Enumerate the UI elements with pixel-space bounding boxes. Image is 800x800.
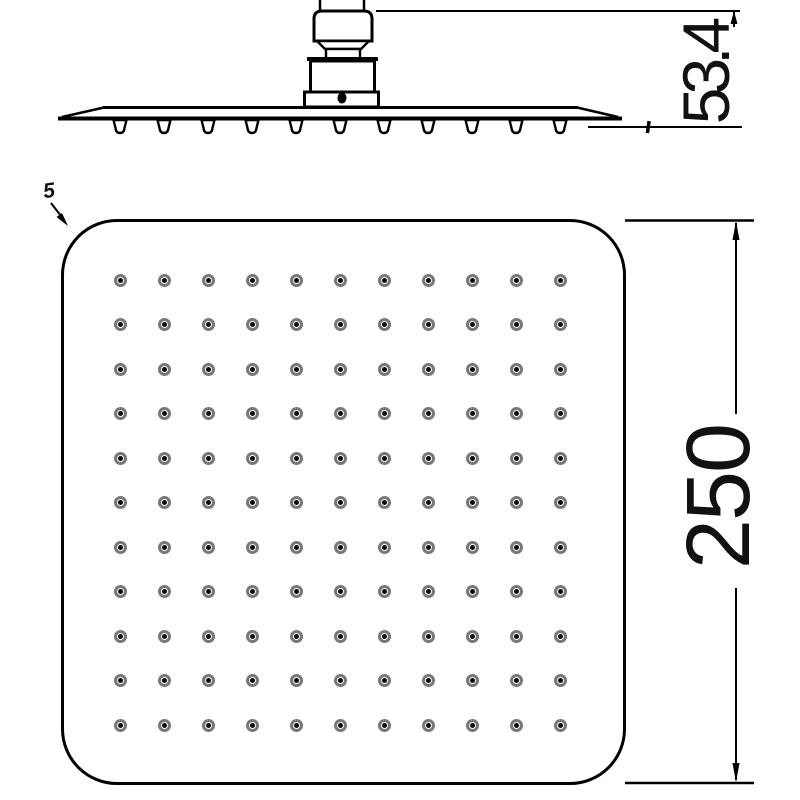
plate-left-bevel xyxy=(62,108,104,118)
connector-body xyxy=(311,61,375,92)
corner-radius-leader xyxy=(51,203,68,226)
arrow-up-icon xyxy=(733,221,740,240)
arrow-down-icon xyxy=(733,763,740,782)
nozzle-tooth xyxy=(378,120,391,133)
leader-arrow-icon xyxy=(57,213,69,226)
arrow-up-icon xyxy=(731,11,738,24)
nozzle-tooth xyxy=(246,120,259,133)
nozzle-tooth xyxy=(290,120,303,133)
nozzle-tooth xyxy=(334,120,347,133)
nozzle-teeth xyxy=(114,120,567,133)
technical-drawing: 53.4 250 5 xyxy=(0,0,800,800)
flange-dot xyxy=(338,93,347,104)
dimension-height-label: 53.4 xyxy=(673,24,739,124)
leader-line xyxy=(51,203,61,216)
nozzle-tooth xyxy=(554,120,567,133)
dimension-size-label: 250 xyxy=(674,425,764,569)
nozzle-tooth xyxy=(114,120,127,133)
plate-right-bevel xyxy=(577,108,618,118)
nozzle-tooth xyxy=(422,120,435,133)
connector-nut xyxy=(314,11,372,41)
connector-skirt xyxy=(317,41,369,49)
side-view-connector xyxy=(305,0,379,107)
nozzle-tooth xyxy=(466,120,479,133)
side-view-plate xyxy=(58,108,622,134)
corner-radius-label: 5 xyxy=(42,180,56,202)
nozzle-tooth xyxy=(510,120,523,133)
nozzle-tooth xyxy=(158,120,171,133)
nozzle-tooth xyxy=(202,120,215,133)
